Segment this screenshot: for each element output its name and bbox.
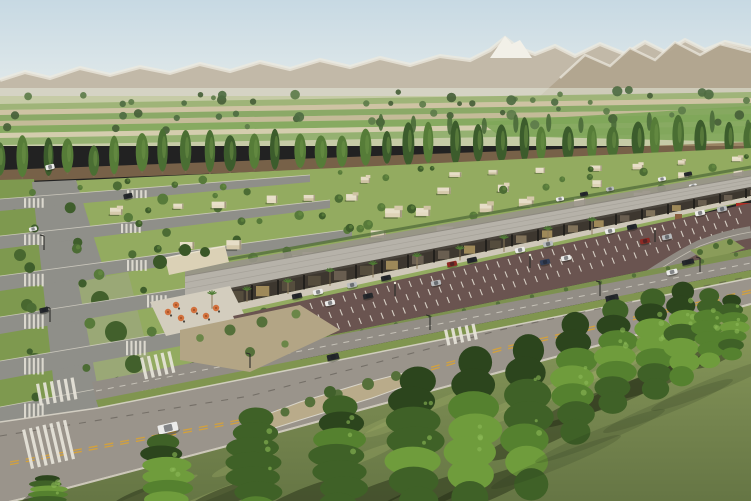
crosswalk-stripe bbox=[33, 234, 35, 245]
tree bbox=[26, 303, 36, 313]
tree bbox=[162, 228, 171, 237]
distant-tree bbox=[556, 107, 561, 112]
crosswalk-stripe bbox=[131, 260, 133, 271]
tree bbox=[153, 255, 167, 269]
house bbox=[265, 196, 277, 205]
tree bbox=[84, 318, 95, 329]
distant-tree bbox=[612, 86, 622, 96]
crosswalk-stripe bbox=[130, 341, 132, 355]
shrub bbox=[362, 378, 374, 390]
distant-tree bbox=[112, 125, 120, 133]
rendering-canvas bbox=[0, 0, 751, 501]
crosswalk-stripe bbox=[42, 198, 44, 208]
distant-tree bbox=[678, 106, 686, 114]
tree bbox=[128, 250, 136, 258]
crosswalk-stripe bbox=[135, 341, 137, 355]
distant-tree bbox=[743, 97, 750, 104]
tree bbox=[24, 262, 35, 273]
crosswalk-stripe bbox=[24, 274, 26, 287]
shrub bbox=[224, 324, 235, 335]
tree bbox=[179, 244, 191, 256]
crosswalk-stripe bbox=[37, 358, 39, 375]
distant-tree bbox=[430, 109, 437, 116]
tree bbox=[546, 114, 551, 132]
distant-tree bbox=[181, 100, 187, 106]
tree bbox=[78, 279, 86, 287]
distant-tree bbox=[557, 92, 563, 98]
crosswalk-stripe bbox=[28, 234, 30, 245]
crosswalk-stripe bbox=[145, 190, 147, 198]
tree bbox=[140, 287, 147, 294]
crosswalk-stripe bbox=[42, 314, 44, 329]
house bbox=[591, 180, 602, 188]
shrub bbox=[734, 252, 738, 256]
distant-tree bbox=[735, 110, 745, 120]
tree bbox=[578, 117, 583, 133]
crosswalk-stripe bbox=[24, 314, 26, 329]
distant-tree bbox=[588, 100, 593, 105]
crosswalk-stripe bbox=[37, 234, 39, 245]
distant-tree bbox=[396, 89, 401, 94]
crosswalk-stripe bbox=[121, 224, 123, 233]
crosswalk-stripe bbox=[28, 314, 30, 329]
distant-tree bbox=[419, 101, 426, 108]
distant-tree bbox=[233, 111, 239, 117]
tree bbox=[105, 321, 127, 343]
tree bbox=[113, 181, 122, 190]
distant-tree bbox=[290, 90, 300, 100]
crosswalk-stripe bbox=[28, 358, 30, 375]
distant-tree bbox=[216, 113, 222, 119]
distant-tree bbox=[294, 112, 304, 122]
distant-tree bbox=[698, 88, 707, 97]
crosswalk-stripe bbox=[125, 224, 127, 233]
tree bbox=[125, 355, 143, 373]
crosswalk-stripe bbox=[144, 341, 146, 355]
distant-tree bbox=[551, 98, 558, 105]
shrub bbox=[564, 287, 568, 291]
distant-tree bbox=[506, 95, 516, 105]
distant-tree bbox=[714, 119, 721, 126]
distant-tree bbox=[368, 117, 376, 125]
shrub bbox=[291, 309, 300, 318]
shrub bbox=[257, 317, 268, 328]
crosswalk-stripe bbox=[136, 260, 138, 271]
distant-tree bbox=[211, 95, 216, 100]
distant-tree bbox=[530, 120, 539, 129]
crosswalk-stripe bbox=[33, 314, 35, 329]
tree bbox=[14, 249, 26, 261]
crosswalk-stripe bbox=[147, 295, 149, 307]
shrub bbox=[281, 340, 288, 347]
shrub bbox=[391, 371, 401, 381]
distant-tree bbox=[245, 124, 250, 129]
distant-tree bbox=[120, 101, 126, 107]
shrub bbox=[280, 407, 289, 416]
tree bbox=[65, 202, 76, 213]
tree bbox=[243, 188, 250, 195]
tree bbox=[157, 194, 168, 205]
crosswalk-stripe bbox=[42, 274, 44, 287]
tree bbox=[378, 114, 383, 131]
tree bbox=[124, 213, 133, 222]
distant-tree bbox=[24, 93, 32, 101]
tree bbox=[482, 118, 487, 134]
distant-tree bbox=[198, 92, 204, 98]
crosswalk-stripe bbox=[37, 198, 39, 208]
crosswalk-stripe bbox=[140, 260, 142, 271]
distant-tree bbox=[603, 108, 610, 115]
shrub bbox=[697, 249, 703, 255]
distant-tree bbox=[457, 101, 462, 106]
tree bbox=[513, 114, 518, 132]
crosswalk-stripe bbox=[130, 224, 132, 233]
crosswalk-stripe bbox=[37, 274, 39, 287]
distant-tree bbox=[134, 109, 143, 118]
distant-tree bbox=[3, 123, 11, 131]
distant-tree bbox=[388, 101, 393, 106]
tree bbox=[82, 364, 90, 372]
distant-tree bbox=[530, 97, 536, 103]
tree bbox=[199, 176, 208, 185]
distant-tree bbox=[647, 93, 653, 99]
distant-tree bbox=[250, 98, 256, 104]
crosswalk-stripe bbox=[139, 341, 141, 355]
aerial-development-rendering bbox=[0, 0, 751, 501]
distant-tree bbox=[119, 112, 127, 120]
crosswalk-stripe bbox=[24, 358, 26, 375]
crosswalk-stripe bbox=[33, 274, 35, 287]
tree bbox=[710, 110, 715, 132]
crosswalk-stripe bbox=[136, 190, 138, 198]
distant-tree bbox=[500, 110, 505, 115]
distant-tree bbox=[363, 100, 369, 106]
crosswalk-stripe bbox=[145, 260, 147, 271]
distant-tree bbox=[625, 86, 633, 94]
crosswalk-stripe bbox=[24, 198, 26, 208]
crosswalk-stripe bbox=[24, 234, 26, 245]
shrub bbox=[196, 334, 204, 342]
tree bbox=[27, 348, 33, 354]
distant-tree bbox=[174, 115, 180, 121]
crosswalk-stripe bbox=[127, 260, 129, 271]
distant-tree bbox=[669, 112, 674, 117]
tree bbox=[29, 189, 36, 196]
crosswalk-stripe bbox=[28, 198, 30, 208]
distant-tree bbox=[447, 93, 457, 103]
crosswalk-stripe bbox=[140, 190, 142, 198]
distant-tree bbox=[218, 91, 227, 100]
distant-tree bbox=[469, 100, 475, 106]
tree bbox=[256, 218, 262, 224]
crosswalk-stripe bbox=[28, 274, 30, 287]
tree bbox=[147, 327, 157, 337]
shrub bbox=[727, 239, 733, 245]
shrub bbox=[305, 397, 316, 408]
shrub bbox=[632, 273, 636, 277]
tree bbox=[200, 247, 210, 257]
crosswalk-stripe bbox=[37, 314, 39, 329]
shrub bbox=[713, 243, 719, 249]
distant-tree bbox=[128, 99, 134, 105]
distant-tree bbox=[11, 111, 19, 119]
crosswalk-stripe bbox=[33, 198, 35, 208]
distant-tree bbox=[80, 92, 87, 99]
crosswalk-stripe bbox=[42, 358, 44, 375]
crosswalk-stripe bbox=[126, 341, 128, 355]
crosswalk-stripe bbox=[33, 358, 35, 375]
house bbox=[535, 168, 545, 174]
